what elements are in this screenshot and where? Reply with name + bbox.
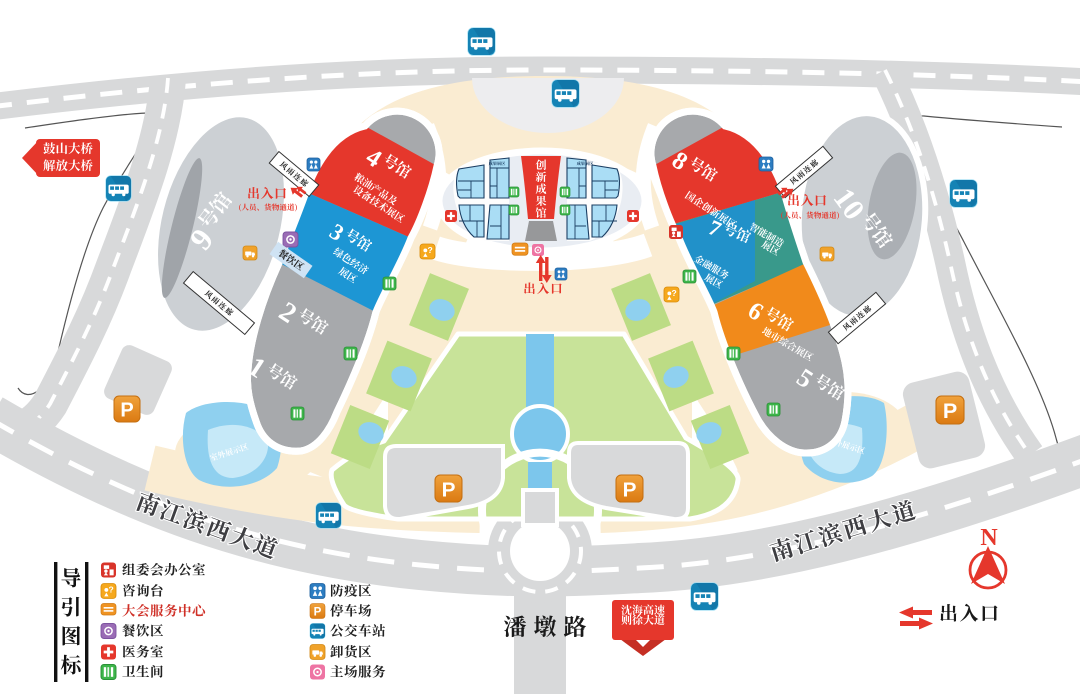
svg-text:N: N (980, 525, 998, 551)
